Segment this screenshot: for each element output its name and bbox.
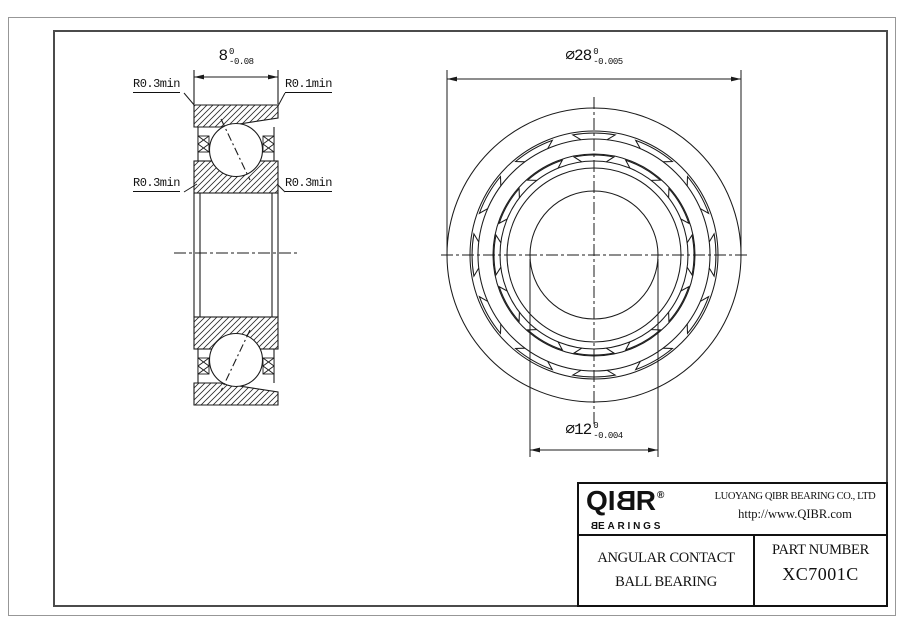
callout-top-right: R0.1min (285, 78, 332, 93)
bore-tolerance: 0 -0.004 (593, 421, 622, 441)
product-type-line2: BALL BEARING (579, 570, 753, 594)
od-value: ⌀28 (565, 47, 591, 65)
title-block: QIBR® BEARINGS LUOYANG QIBR BEARING CO.,… (577, 482, 888, 607)
brand-logo-text: QIBR® (586, 486, 664, 523)
callout-mid-right: R0.3min (285, 177, 332, 192)
width-value: 8 (218, 47, 227, 65)
arrowhead (530, 448, 540, 453)
arrowhead (447, 77, 457, 82)
title-block-body: ANGULAR CONTACT BALL BEARING PART NUMBER… (579, 536, 886, 607)
od-tolerance: 0 -0.005 (593, 47, 622, 67)
bore-dimension-text: ⌀12 0 -0.004 (534, 421, 654, 441)
registered-trademark-icon: ® (657, 490, 664, 501)
brand-logo-subtext: BEARINGS (586, 521, 664, 532)
front-view (441, 70, 747, 457)
part-number-label: PART NUMBER (755, 542, 886, 559)
company-info: LUOYANG QIBR BEARING CO., LTD http://www… (707, 491, 883, 522)
od-dimension-text: ⌀28 0 -0.005 (534, 47, 654, 67)
part-number-value: XC7001C (755, 564, 886, 585)
bearing-section (174, 105, 298, 405)
arrowhead (194, 75, 204, 80)
company-name: LUOYANG QIBR BEARING CO., LTD (707, 491, 883, 502)
brand-logo: QIBR® BEARINGS (586, 486, 664, 532)
centerlines (441, 97, 747, 424)
section-view (174, 70, 298, 405)
callout-mid-left: R0.3min (133, 177, 180, 192)
website-url: http://www.QIBR.com (707, 507, 883, 522)
arrowhead (268, 75, 278, 80)
callout-top-left: R0.3min (133, 78, 180, 93)
product-type-line1: ANGULAR CONTACT (579, 546, 753, 570)
arrowhead (731, 77, 741, 82)
bore-value: ⌀12 (565, 421, 591, 439)
width-dimension (194, 70, 278, 104)
part-number-cell: PART NUMBER XC7001C (753, 536, 886, 607)
width-dimension-text: 8 0 -0.08 (186, 47, 286, 67)
title-block-header: QIBR® BEARINGS LUOYANG QIBR BEARING CO.,… (579, 484, 886, 536)
arrowhead (648, 448, 658, 453)
width-tolerance: 0 -0.08 (229, 47, 254, 67)
product-type: ANGULAR CONTACT BALL BEARING (579, 536, 753, 607)
drawing-sheet: 8 0 -0.08 ⌀28 0 -0.005 ⌀12 0 -0.004 R0.3… (0, 0, 900, 636)
